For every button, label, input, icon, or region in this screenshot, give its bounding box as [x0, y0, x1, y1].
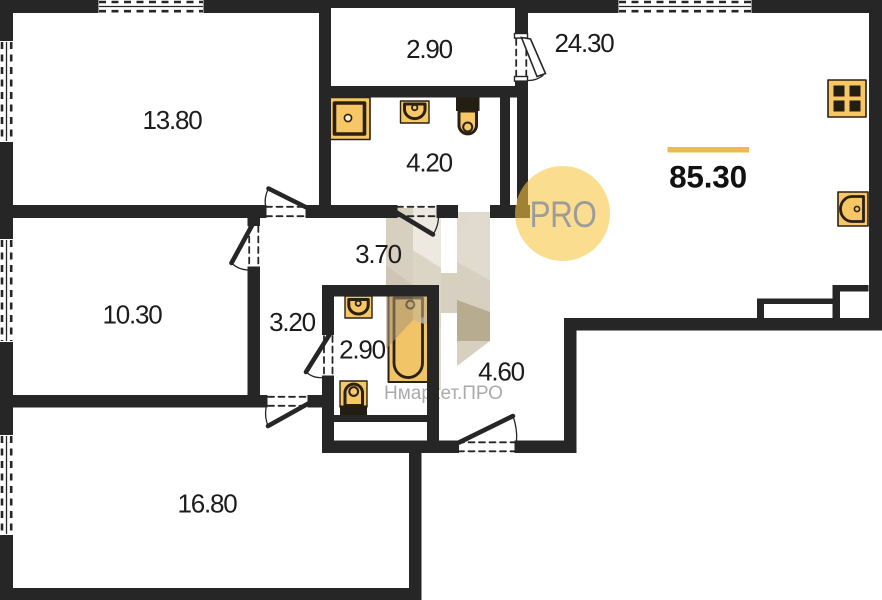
svg-text:4.60: 4.60: [478, 357, 525, 387]
svg-text:24.30: 24.30: [554, 28, 614, 58]
svg-text:3.20: 3.20: [269, 307, 316, 337]
svg-text:10.30: 10.30: [102, 300, 162, 330]
svg-text:2.90: 2.90: [339, 335, 386, 365]
svg-text:16.80: 16.80: [177, 489, 237, 519]
svg-text:3.70: 3.70: [355, 239, 402, 269]
svg-text:2.90: 2.90: [406, 34, 453, 64]
svg-text:PRO: PRO: [530, 195, 597, 236]
svg-text:13.80: 13.80: [142, 105, 202, 135]
svg-text:85.30: 85.30: [669, 159, 747, 195]
svg-text:4.20: 4.20: [406, 148, 453, 178]
